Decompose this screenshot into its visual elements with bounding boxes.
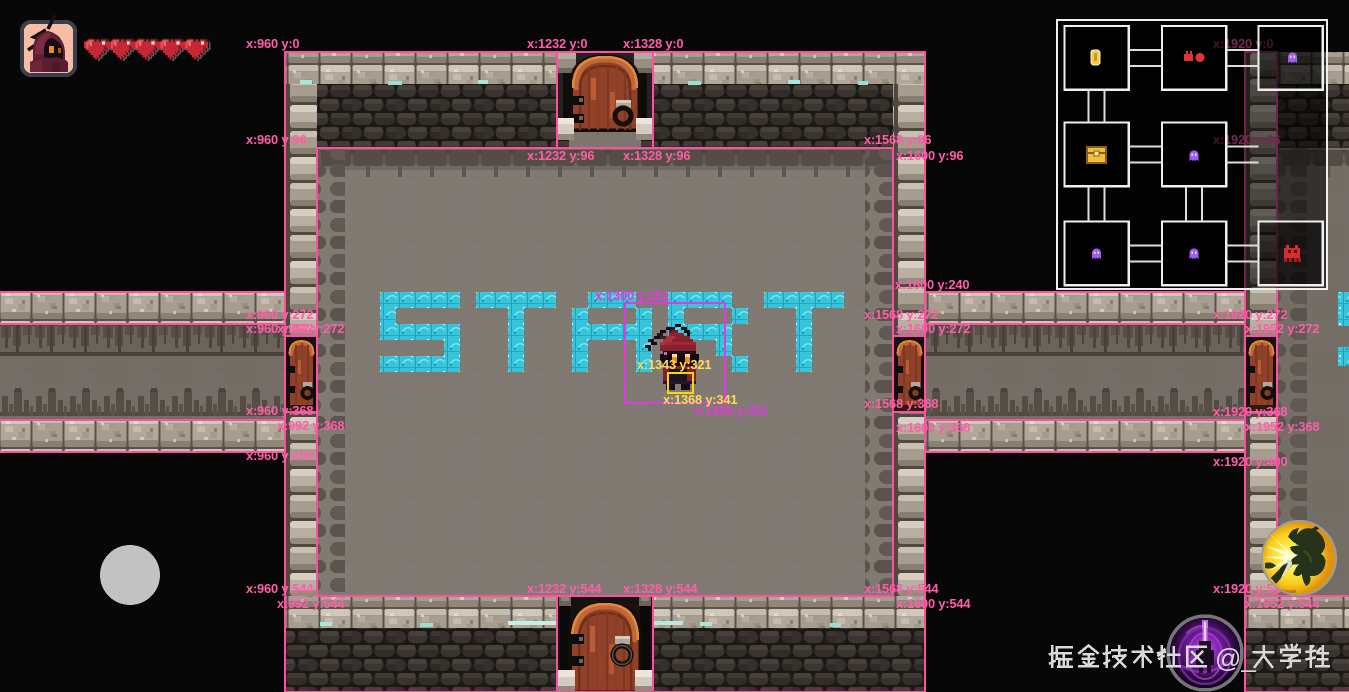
svg-text:x:1600 y:272: x:1600 y:272	[896, 321, 970, 336]
svg-text:x:1600 y:240: x:1600 y:240	[895, 277, 969, 292]
svg-text:x:1568 y:272: x:1568 y:272	[864, 307, 938, 322]
svg-text:x:992 y:368: x:992 y:368	[277, 418, 344, 433]
svg-text:x:1600 y:544: x:1600 y:544	[896, 596, 971, 611]
svg-text:x:960 y:272: x:960 y:272	[246, 307, 313, 322]
svg-text:x:960 y:400: x:960 y:400	[246, 448, 313, 463]
svg-text:x:1952 y:544: x:1952 y:544	[1245, 596, 1320, 611]
svg-text:x:960 y:96: x:960 y:96	[246, 132, 306, 147]
svg-text:x:1568 y:544: x:1568 y:544	[864, 581, 939, 596]
svg-text:x:960 y:544: x:960 y:544	[246, 581, 314, 596]
svg-text:x:960 y:368: x:960 y:368	[246, 403, 313, 418]
svg-text:x:1920 y:368: x:1920 y:368	[1213, 404, 1287, 419]
svg-text:x:1920 y:272: x:1920 y:272	[1213, 307, 1287, 322]
svg-text:x:992 y:272: x:992 y:272	[277, 321, 344, 336]
svg-text:x:960 y:0: x:960 y:0	[246, 36, 299, 51]
svg-text:@_: @_	[1215, 643, 1256, 673]
svg-text:x:1600 y:96: x:1600 y:96	[896, 148, 963, 163]
svg-text:x:1232 y:544: x:1232 y:544	[527, 581, 602, 596]
svg-text:x:1232 y:0: x:1232 y:0	[527, 36, 587, 51]
svg-text:x:1920 y:400: x:1920 y:400	[1213, 454, 1287, 469]
svg-text:x:992 y:544: x:992 y:544	[277, 596, 345, 611]
svg-text:x:1952 y:368: x:1952 y:368	[1245, 419, 1319, 434]
svg-text:x:1328 y:0: x:1328 y:0	[623, 36, 683, 51]
svg-text:x:1328 y:544: x:1328 y:544	[623, 581, 698, 596]
svg-text:x:1343 y:321: x:1343 y:321	[637, 357, 711, 372]
svg-text:x:1952 y:272: x:1952 y:272	[1245, 321, 1319, 336]
svg-text:x:1568 y:368: x:1568 y:368	[864, 396, 938, 411]
svg-text:x:1600 y:368: x:1600 y:368	[896, 420, 970, 435]
svg-text:x:1300 y:251: x:1300 y:251	[595, 288, 669, 303]
svg-text:x:1568 y:96: x:1568 y:96	[864, 132, 931, 147]
svg-text:x:1328 y:96: x:1328 y:96	[623, 148, 690, 163]
svg-text:x:1232 y:96: x:1232 y:96	[527, 148, 594, 163]
svg-text:x:1368 y:341: x:1368 y:341	[663, 392, 737, 407]
